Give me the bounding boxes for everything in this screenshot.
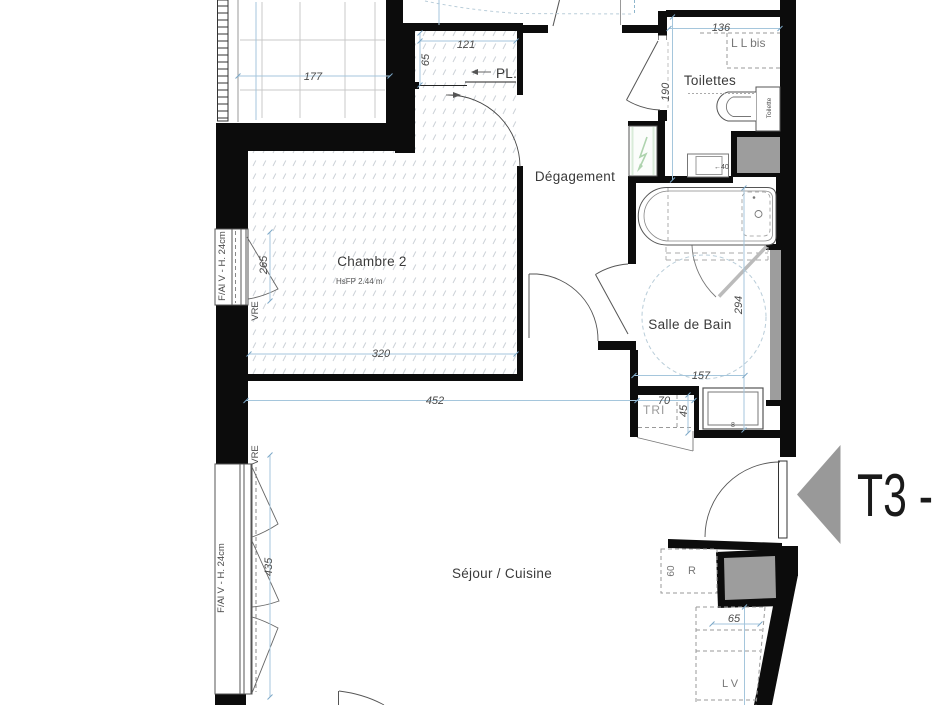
svg-text:60: 60 <box>666 565 677 577</box>
svg-text:PL.: PL. <box>496 66 517 81</box>
svg-text:265: 265 <box>258 255 270 275</box>
svg-text:L L bis: L L bis <box>731 36 765 50</box>
svg-text:452: 452 <box>426 395 444 407</box>
svg-text:65: 65 <box>420 53 432 66</box>
svg-text:435: 435 <box>263 557 275 576</box>
svg-text:121: 121 <box>457 39 475 51</box>
svg-text:8: 8 <box>731 422 735 429</box>
svg-text:Toilettes: Toilettes <box>684 73 736 88</box>
svg-text:136: 136 <box>712 22 731 34</box>
svg-text:190: 190 <box>660 82 672 101</box>
svg-text:VRE: VRE <box>250 301 261 321</box>
svg-text:Chambre 2: Chambre 2 <box>337 254 406 269</box>
svg-text:F/Al V - H. 24cm: F/Al V - H. 24cm <box>217 231 228 301</box>
svg-text:←40: ←40 <box>714 164 729 171</box>
svg-text:Toilette: Toilette <box>766 97 773 118</box>
svg-text:177: 177 <box>304 71 323 83</box>
svg-text:70: 70 <box>658 395 671 407</box>
svg-text:65: 65 <box>728 613 741 625</box>
svg-text:320: 320 <box>372 348 391 360</box>
svg-text:157: 157 <box>692 370 711 382</box>
svg-text:L V: L V <box>722 678 739 690</box>
svg-text:T3 -: T3 - <box>857 462 933 529</box>
svg-text:Salle de Bain: Salle de Bain <box>648 317 731 332</box>
svg-text:45: 45 <box>678 404 690 417</box>
svg-text:294: 294 <box>733 296 745 315</box>
svg-text:F/Al V - H. 24cm: F/Al V - H. 24cm <box>216 543 227 613</box>
svg-text:VRE: VRE <box>250 445 261 465</box>
svg-text:R: R <box>688 565 696 577</box>
svg-text:Séjour / Cuisine: Séjour / Cuisine <box>452 566 552 581</box>
svg-text:Dégagement: Dégagement <box>535 169 615 184</box>
svg-text:HsFP 2.44 m: HsFP 2.44 m <box>336 277 383 286</box>
